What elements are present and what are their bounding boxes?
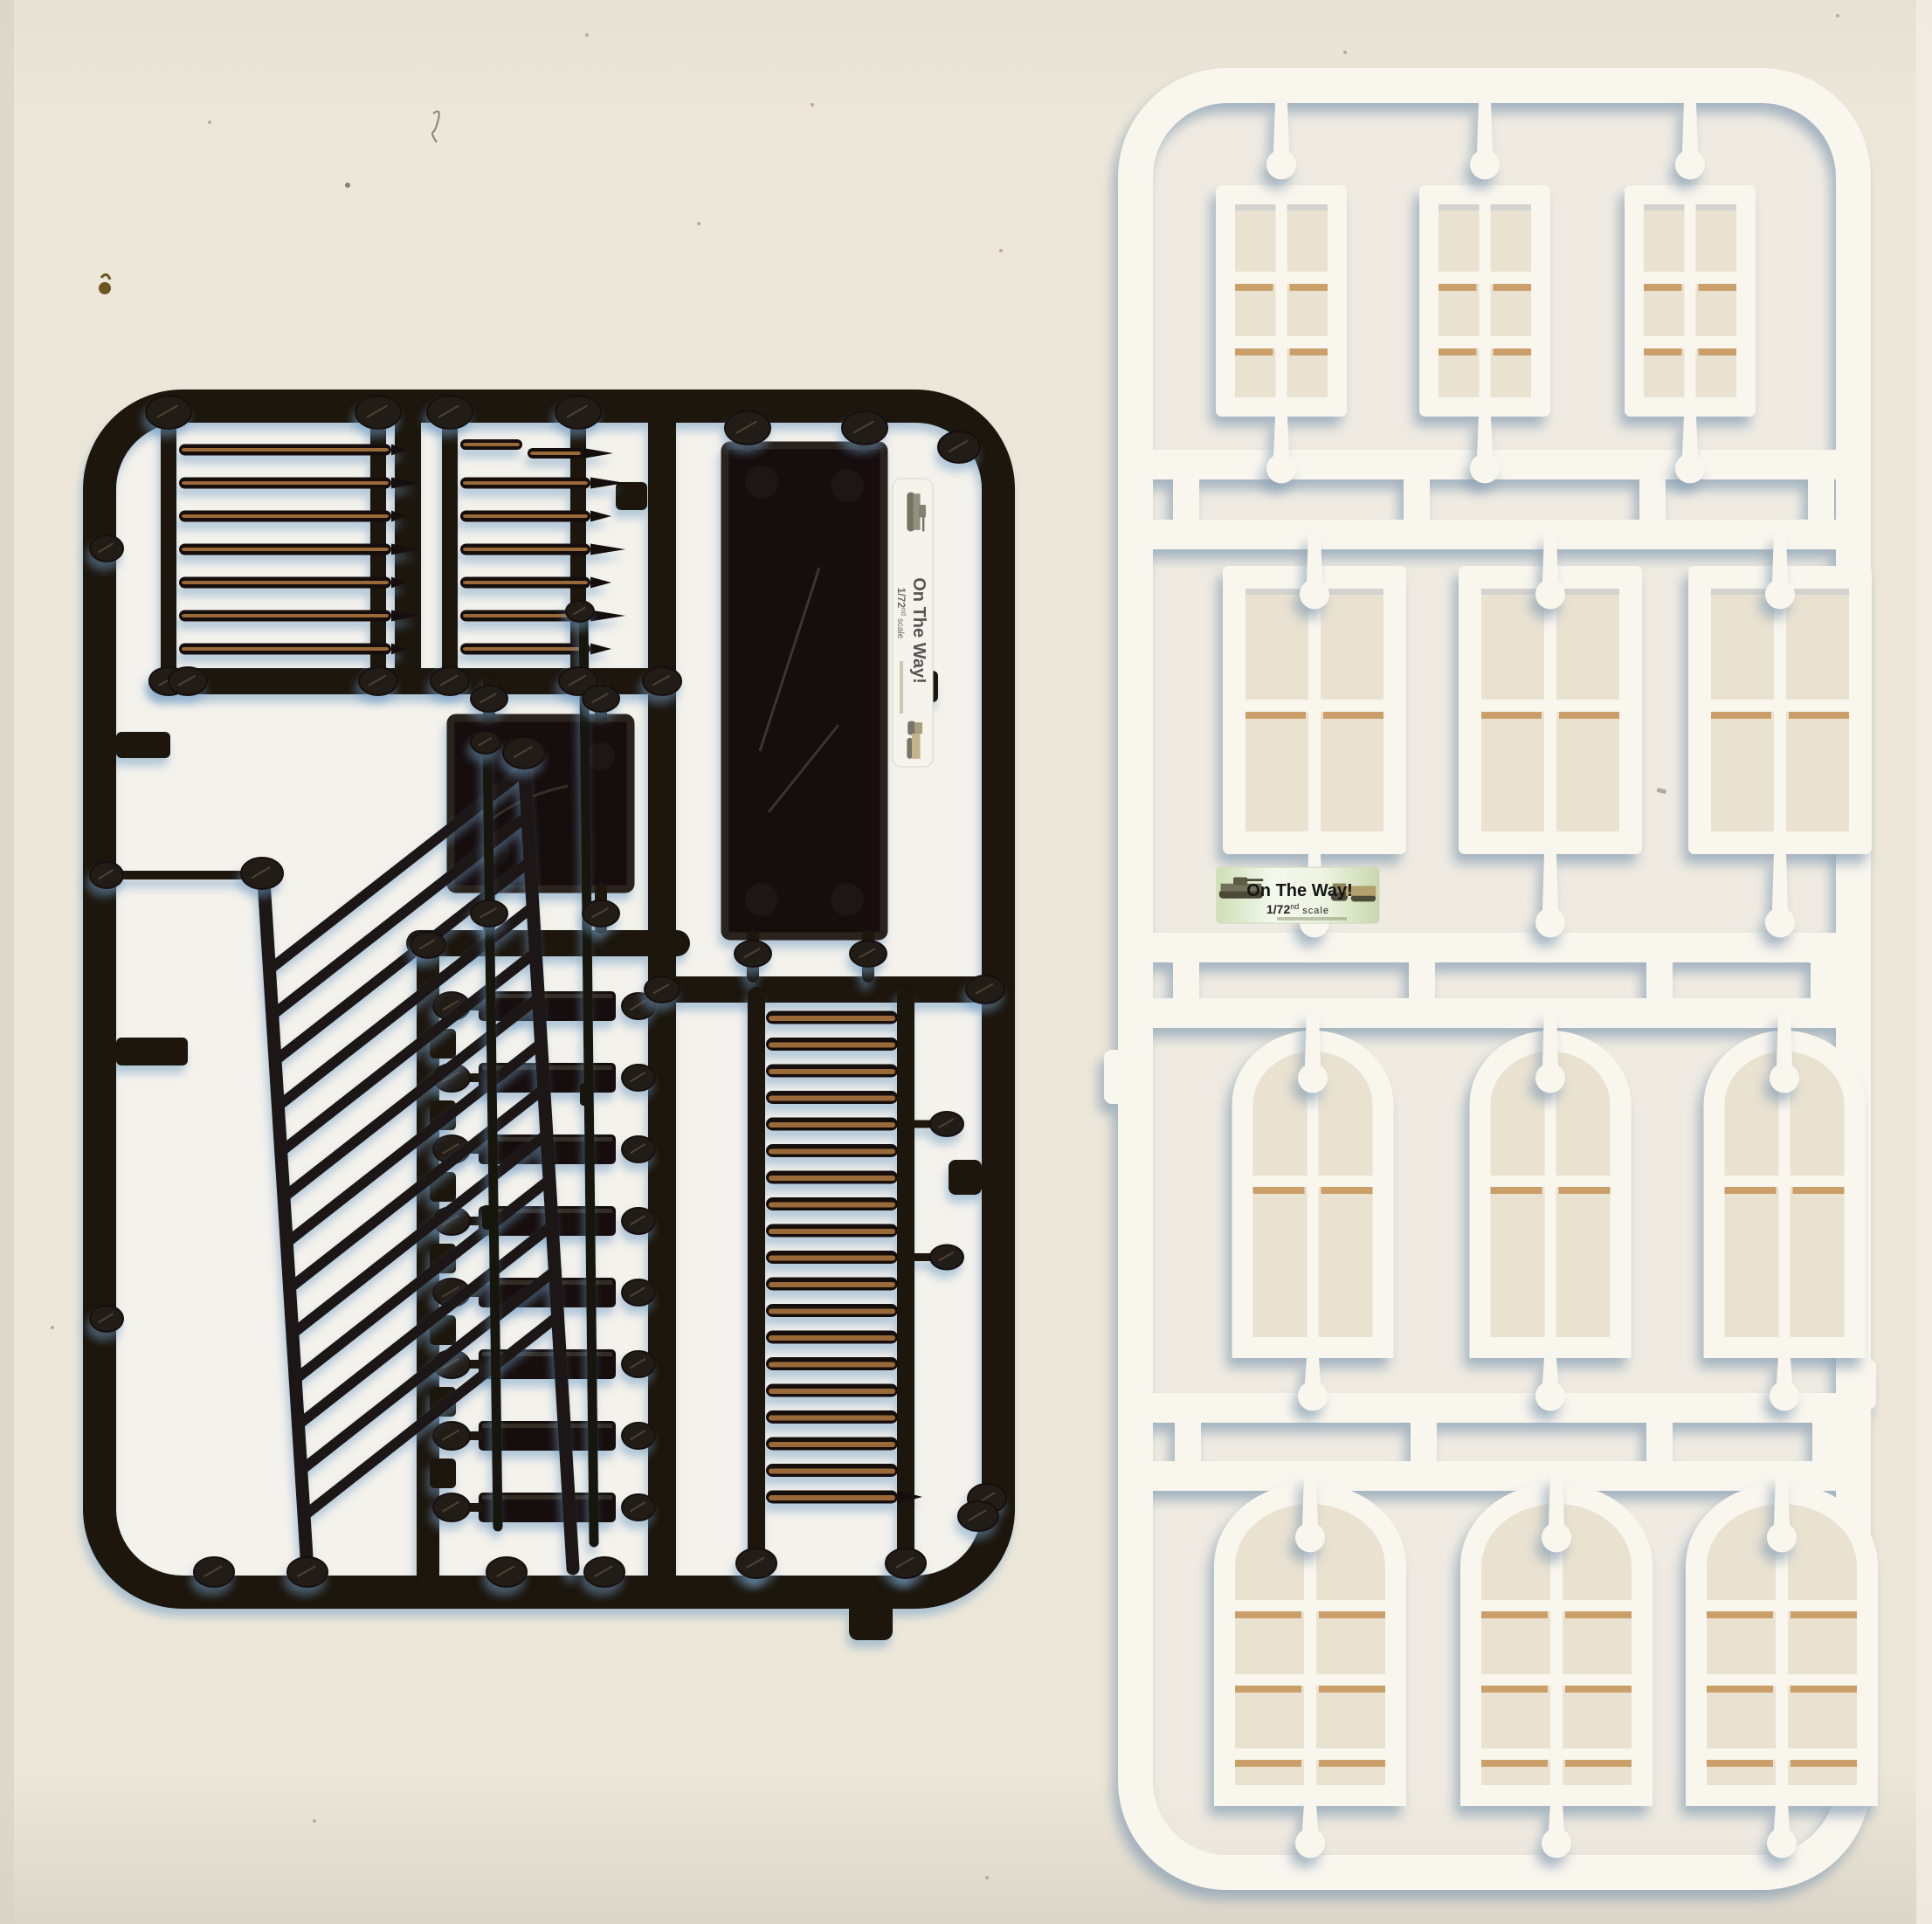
handrail-rung-broken-highlight [530,452,581,455]
glazing-bar-shadow [1711,712,1771,719]
dust-speck [99,282,111,294]
frame-nub [1855,1359,1876,1410]
ladder-rung-highlight [769,1495,895,1500]
glazing-bar-shadow [1725,1187,1777,1194]
dust-speck [345,183,350,188]
glazing-bar-shadow [1791,1686,1857,1693]
sprue-gate [146,396,191,429]
sprue-gate [583,900,619,927]
sprue-gate [958,1501,998,1531]
handrail-rung-broken-highlight [463,443,520,446]
glazing-bar-shadow [1565,1760,1632,1767]
sprue-gate [622,1208,655,1234]
glazing-bar-shadow [1793,1187,1845,1194]
glazing-bar-shadow [1235,284,1273,291]
glazing-bar-shadow [1321,1187,1373,1194]
ejector-pin-mark [745,465,778,499]
runner-tab [1808,472,1834,529]
handrail-rung-highlight [463,481,588,485]
glazing-bar-shadow [1707,1611,1773,1618]
glazing-bar-shadow [1559,1187,1611,1194]
tread-highlight [482,994,612,998]
ladder-rung-highlight [769,1469,895,1474]
glazing-bar-shadow [1319,1611,1385,1618]
sprue-gate [930,1245,963,1270]
glazing-bar-shadow [1791,1760,1857,1767]
runner-tab [1411,1415,1437,1471]
glazing-bar [1642,336,1738,348]
dust-speck [1836,14,1839,17]
rod-joint [580,1083,592,1106]
handrail-rung-highlight [463,514,588,518]
glazing-bar-shadow [1699,284,1737,291]
sprue-gate [622,1065,655,1091]
sprue-gate [169,667,207,695]
label-brand-text: On The Way! [909,577,928,683]
sprue-gate [241,858,283,889]
halftrack-icon [907,721,922,759]
glazing-bar-shadow [1565,1611,1632,1618]
glazing-bar [1233,1748,1387,1760]
ladder-rung-highlight [769,1309,895,1314]
sprue-gate [725,411,770,445]
sprue-gate [503,737,545,769]
ladder-rung-highlight [769,1389,895,1394]
glazing-bar-shadow [1319,1760,1385,1767]
sprue-gate [735,941,771,967]
ladder-rung-highlight [769,1256,895,1261]
sprue-gate [622,1351,655,1377]
glazing-bar-shadow [1439,284,1477,291]
glazing-bar-shadow [1235,1760,1301,1767]
runner-tab [116,732,170,758]
sprue-gate [736,1548,776,1578]
rod-joint [482,1205,494,1230]
glazing-bar [1480,1674,1633,1686]
glazing-bar [1233,1674,1387,1686]
glazing-bar-shadow [1644,348,1682,355]
dust-speck [1343,51,1347,54]
glazing-bar-shadow [1707,1686,1773,1693]
glazing-bar-shadow [1235,1686,1301,1693]
runner-tab [1175,1415,1201,1471]
ejector-pin-mark [831,883,864,916]
ladder-rung-highlight [769,1442,895,1447]
runner-tab [949,1160,982,1195]
glazing-bar-shadow [1235,1611,1301,1618]
glazing-bar-shadow [1439,348,1477,355]
sprue-gate [930,1112,963,1136]
glazing-bar-shadow [1481,712,1542,719]
glazing-bar-shadow [1491,1187,1542,1194]
glazing-bar-shadow [1644,284,1682,291]
label-fine-print [1277,917,1347,921]
label-brand-text: On The Way! [1246,881,1352,900]
sprue-gate [555,396,601,429]
handrail-rung-highlight [182,548,389,551]
black-sprue-label: On The Way! 1/72ndscale [893,479,933,767]
runner-tab [1173,472,1199,529]
glazing-bar-shadow [1319,1686,1385,1693]
ladder-rung-highlight [769,1203,895,1208]
glazing-bar-shadow [1699,348,1737,355]
ladder-rung-highlight [769,1416,895,1421]
handrail-rung-highlight [182,514,389,518]
handrail-rung-highlight [463,548,588,551]
ladder-rung-highlight [769,1229,895,1234]
dust-speck [585,33,589,37]
runner-tab [1639,472,1666,529]
glazing-mullion [1779,1057,1791,1337]
ladder-rung-highlight [769,1096,895,1101]
sprue-gate [90,862,123,888]
sprue-gate [431,667,469,695]
sprue-gate [355,396,401,429]
four-pane-window [1459,566,1642,854]
ladder-rung-highlight [769,1149,895,1155]
glazing-bar [1709,700,1851,712]
sprue-gate [433,1422,470,1450]
runner-tab [1646,1415,1673,1471]
ladder-rung-highlight [769,1016,895,1021]
glazing-bar-shadow [1494,284,1532,291]
glazing-mullion [1480,203,1491,399]
frame-nub [1104,1050,1125,1104]
scan-right-edge [1916,0,1932,1924]
sprue-gate [622,1494,655,1521]
dust-speck [811,103,814,107]
glazing-bar [1252,1176,1375,1187]
glazing-bar-shadow [1290,348,1328,355]
glazing-mullion [1276,203,1287,399]
sprue-gate [645,976,680,1003]
glazing-bar-shadow [1290,284,1328,291]
sprue-gate [90,535,123,562]
white-sprue-label: On The Way! 1/72ndscale [1217,867,1379,923]
ejector-pin-mark [745,883,778,916]
sprue-gate [427,396,473,429]
sprue-gate [287,1557,328,1587]
glazing-bar-shadow [1707,1760,1773,1767]
sprue-gate [938,431,980,463]
ladder-rung-highlight [769,1335,895,1341]
glazing-bar [1480,700,1621,712]
glazing-bar [1705,1600,1859,1611]
runner-tab [1646,954,1673,1008]
runner-tab [616,482,647,510]
handrail-rung-highlight [182,448,389,452]
glazing-bar [1437,336,1533,348]
glazing-bar-shadow [1565,1686,1632,1693]
handrail-rung-highlight [182,647,389,651]
sprue-gate [622,1423,655,1449]
glazing-bar [1489,1176,1612,1187]
glazing-bar-shadow [1481,1760,1548,1767]
runner-tab [116,1038,188,1065]
glazing-bar-shadow [1245,712,1306,719]
runner-tab [430,1459,456,1488]
handrail-rung-highlight [463,581,588,584]
large-base-plate [725,445,884,936]
ladder-rung-highlight [769,1362,895,1368]
scan-image: On The Way! 1/72ndscale On The Way! 1/72… [0,0,1932,1924]
ladder-rung-highlight [769,1282,895,1287]
glazing-bar-shadow [1559,712,1619,719]
glazing-bar-shadow [1791,1611,1857,1618]
label-fine-print [900,661,903,714]
sprue-gate [433,1493,470,1521]
glazing-bar-shadow [1323,712,1383,719]
glazing-bar [1233,1600,1387,1611]
glazing-bar [1705,1748,1859,1760]
glazing-bar-shadow [1789,712,1849,719]
four-pane-window [1688,566,1872,854]
sprue-gate [359,667,397,695]
glazing-mullion [1545,1057,1556,1337]
glazing-bar [1480,1600,1633,1611]
scanner-bed: On The Way! 1/72ndscale On The Way! 1/72… [0,0,1932,1924]
sprue-gate [842,411,887,445]
white-sprue: On The Way! 1/72ndscale [1104,86,1878,1872]
ladder-rung-highlight [769,1122,895,1128]
six-pane-window [1419,185,1550,417]
ladder-rung-highlight [769,1043,895,1048]
sprue-gate [194,1557,234,1587]
glazing-bar-shadow [1481,1611,1548,1618]
glazing-bar [1480,1748,1633,1760]
runner-tab [1173,954,1199,1008]
dust-speck [999,249,1003,252]
dust-speck [313,1819,316,1823]
glazing-bar-shadow [1481,1686,1548,1693]
ejector-pin-mark [831,469,864,502]
sprue-gate [886,1548,926,1578]
sprue-gate [90,1306,123,1332]
dust-speck [51,1326,54,1329]
runner-tab [1409,954,1435,1008]
glazing-bar-shadow [1235,348,1273,355]
sprue-gate [643,667,681,695]
ladder-rung-highlight [769,1176,895,1181]
glazing-mullion [1308,1057,1319,1337]
scan-left-edge [0,0,14,1924]
runner-tab [1404,472,1430,529]
sprue-gate [411,932,445,958]
sprue-gate [584,1557,624,1587]
sprue-gate [486,1557,527,1587]
glazing-bar [1233,272,1329,284]
frame-bottom-tab [849,1591,893,1640]
six-pane-window [1216,185,1347,417]
glazing-bar [1723,1176,1846,1187]
four-pane-window [1223,566,1406,854]
handrail-rung-highlight [182,481,389,485]
black-sprue: On The Way! 1/72ndscale [90,396,1006,1640]
dust-speck [208,121,211,124]
glazing-bar [1437,272,1533,284]
sprue-gate [622,1279,655,1306]
dust-speck [985,1876,989,1879]
glazing-bar [1705,1674,1859,1686]
glazing-mullion [1685,203,1696,399]
handrail-rung-highlight [182,614,389,617]
sprue-gate [471,900,507,927]
glazing-bar [1233,336,1329,348]
sprue-gate [966,976,1004,1003]
six-pane-window [1625,185,1756,417]
dust-speck [697,222,700,225]
glazing-bar [1642,272,1738,284]
sprue-gate [583,686,619,712]
sprue-gate [850,941,887,967]
runner-tab [1811,954,1837,1008]
glazing-bar-shadow [1253,1187,1305,1194]
handrail-rung-highlight [182,581,389,584]
glazing-bar [1244,700,1385,712]
handrail-rung-highlight [463,647,588,651]
sprue-gate [622,1136,655,1162]
ladder-rung-highlight [769,1069,895,1074]
sprue-gate [471,686,507,712]
ejector-pin-mark [587,742,615,770]
runner-tab [1812,1415,1839,1471]
glazing-bar-shadow [1494,348,1532,355]
